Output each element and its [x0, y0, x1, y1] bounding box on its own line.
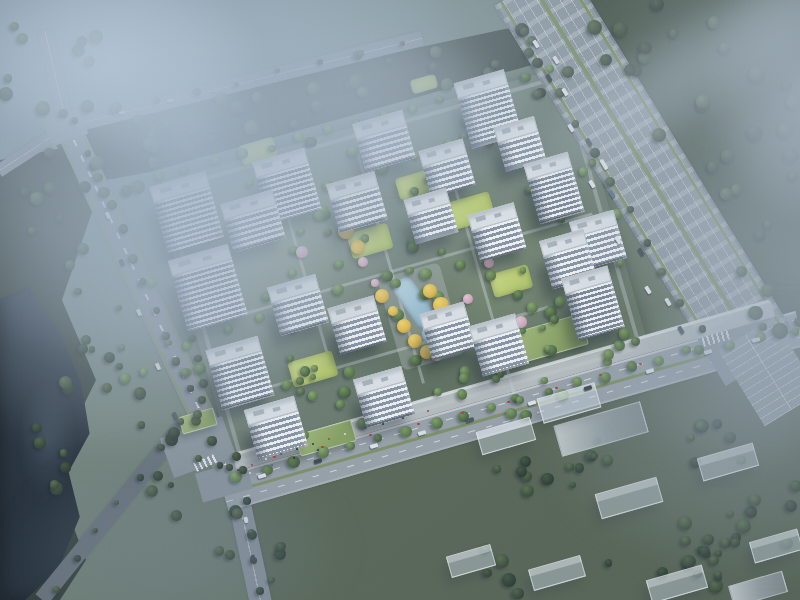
tree	[287, 355, 294, 362]
tree	[256, 313, 265, 322]
tree	[527, 302, 538, 313]
tree	[420, 268, 431, 279]
tree	[747, 126, 762, 141]
tree	[60, 462, 70, 472]
tree	[74, 288, 82, 296]
tree	[788, 171, 799, 182]
tree	[298, 228, 305, 235]
blossom-tree	[463, 294, 474, 305]
tree	[89, 346, 95, 352]
tree	[386, 57, 394, 65]
tree	[516, 396, 524, 404]
tree	[194, 355, 201, 362]
tree	[311, 100, 323, 112]
tree	[708, 16, 721, 29]
shopfront-accent	[507, 401, 510, 403]
shopfront-accent	[369, 434, 372, 436]
tree	[107, 200, 117, 210]
tree	[335, 260, 344, 269]
vehicle	[172, 411, 179, 419]
ghost-building	[646, 564, 708, 600]
tree	[4, 74, 13, 83]
tree	[644, 239, 651, 246]
tree	[163, 120, 175, 132]
aerial-render-canvas	[0, 0, 800, 600]
tree	[346, 442, 355, 451]
tree	[325, 229, 332, 236]
tree	[546, 65, 554, 73]
tree	[688, 434, 694, 440]
tree	[572, 120, 579, 127]
tree	[153, 307, 160, 314]
tree	[570, 482, 577, 489]
tree	[483, 569, 492, 578]
tree	[541, 377, 548, 384]
tree	[89, 30, 103, 44]
tree	[268, 145, 275, 152]
tree	[333, 284, 344, 295]
tree	[566, 463, 574, 471]
apartment-tower	[523, 152, 584, 224]
pedestrian	[362, 428, 364, 430]
tree	[494, 465, 501, 472]
tree	[74, 555, 81, 562]
tree	[430, 46, 441, 57]
tree	[792, 328, 799, 335]
tree	[294, 132, 304, 142]
tree	[77, 243, 89, 255]
tree	[736, 266, 747, 277]
tree	[93, 173, 103, 183]
tree	[785, 500, 797, 512]
tree	[153, 471, 163, 481]
tree	[311, 365, 318, 372]
tree	[778, 123, 793, 138]
tree	[506, 408, 517, 419]
tree	[699, 325, 707, 333]
tree	[339, 386, 351, 398]
tree	[696, 421, 705, 430]
tree	[533, 90, 541, 98]
tree	[681, 536, 691, 546]
apartment-tower	[267, 274, 329, 336]
tree	[400, 41, 405, 46]
tree	[308, 391, 318, 401]
tree	[324, 124, 334, 134]
tree	[676, 299, 684, 307]
tree	[679, 516, 692, 529]
tree	[541, 473, 553, 485]
tree	[459, 373, 469, 383]
tree	[215, 92, 228, 105]
tree	[457, 389, 468, 400]
tree	[290, 120, 298, 128]
tree	[700, 546, 711, 557]
tree	[289, 269, 297, 277]
tree	[487, 403, 495, 411]
tree	[721, 149, 735, 163]
tree	[348, 146, 358, 156]
tree	[719, 42, 731, 54]
tree	[139, 278, 146, 285]
tree	[725, 432, 736, 443]
tree	[737, 519, 751, 533]
shopfront-accent	[639, 363, 642, 365]
tree	[208, 134, 219, 145]
tree	[276, 542, 285, 551]
tree	[121, 185, 133, 197]
tree	[30, 192, 44, 206]
tree	[772, 323, 787, 338]
lake-reflection	[18, 380, 78, 500]
tree	[252, 92, 262, 102]
gold-tree	[375, 289, 390, 304]
tree	[682, 346, 690, 354]
tree	[721, 538, 731, 548]
tree	[748, 306, 762, 320]
tree	[631, 337, 639, 345]
tree	[168, 427, 180, 439]
tree	[243, 497, 251, 505]
gold-tree	[423, 284, 436, 297]
tree	[193, 88, 201, 96]
vehicle	[588, 180, 596, 189]
tree	[56, 214, 65, 223]
tree	[614, 340, 625, 351]
vehicle	[155, 362, 162, 370]
tree	[116, 305, 123, 312]
lawn	[488, 264, 533, 298]
tree	[731, 538, 740, 547]
tree	[138, 421, 145, 428]
tree	[703, 534, 714, 545]
blossom-tree	[371, 279, 380, 288]
tree	[575, 463, 585, 473]
apartment-tower	[168, 244, 248, 332]
tree	[713, 419, 722, 428]
tree	[168, 482, 174, 488]
tree	[180, 166, 189, 175]
tree	[53, 586, 60, 593]
tree	[579, 167, 588, 176]
apartment-tower	[326, 171, 388, 233]
tree	[36, 101, 50, 115]
tree	[59, 376, 72, 389]
tree	[627, 361, 637, 371]
tree	[155, 171, 165, 181]
pedestrian	[427, 410, 429, 412]
tree	[247, 180, 254, 187]
tree	[234, 82, 239, 87]
tree	[725, 341, 734, 350]
ghost-building	[595, 477, 664, 520]
tree	[318, 446, 329, 457]
tree	[514, 290, 524, 300]
tree	[238, 106, 247, 115]
tree	[297, 388, 305, 396]
tree	[492, 375, 500, 383]
lawn	[410, 74, 439, 95]
tree	[400, 426, 412, 438]
shopfront-accent	[321, 446, 324, 448]
tree	[84, 56, 95, 67]
tree	[34, 437, 46, 449]
shopfront-accent	[461, 412, 464, 414]
tree	[120, 373, 131, 384]
tree	[441, 78, 453, 90]
tree	[77, 36, 87, 46]
tree	[728, 511, 735, 518]
hip-roof-building	[728, 571, 788, 600]
tree	[0, 87, 13, 100]
tree	[437, 96, 445, 104]
tree	[133, 114, 144, 125]
gold-tree	[397, 319, 412, 334]
tree	[282, 380, 292, 390]
tree	[429, 62, 439, 72]
tree	[172, 357, 181, 366]
tree	[613, 22, 628, 37]
tree	[410, 355, 422, 367]
tree	[790, 480, 800, 492]
tree	[709, 556, 718, 565]
tree	[406, 267, 414, 275]
tree	[148, 157, 159, 168]
tree	[605, 559, 613, 567]
tree	[639, 42, 652, 55]
tree	[520, 267, 526, 273]
tree	[268, 577, 274, 583]
tree	[225, 325, 233, 333]
tree	[59, 109, 68, 118]
tree	[171, 510, 182, 521]
tree	[187, 385, 194, 392]
pedestrian	[280, 453, 282, 455]
shopfront-accent	[273, 456, 276, 458]
tree	[131, 180, 145, 194]
tree	[391, 279, 400, 288]
tree	[98, 187, 109, 198]
pedestrian	[296, 448, 298, 450]
tree	[409, 105, 417, 113]
vehicle	[677, 326, 685, 335]
tree	[336, 400, 345, 409]
tree	[85, 150, 92, 157]
ghost-building	[528, 555, 586, 591]
tree	[619, 328, 631, 340]
tree	[256, 587, 264, 595]
tree	[651, 0, 664, 11]
tree	[491, 60, 500, 69]
tree	[116, 363, 123, 370]
tree	[182, 141, 191, 150]
tree	[71, 117, 78, 124]
tree	[91, 156, 105, 170]
tree	[486, 270, 496, 280]
tree	[749, 494, 761, 506]
tree	[439, 248, 446, 255]
pedestrian	[382, 423, 384, 425]
tree	[81, 100, 93, 112]
tree	[516, 466, 527, 477]
tree	[151, 145, 159, 153]
tree	[78, 344, 89, 355]
pedestrian	[402, 417, 404, 419]
apartment-tower	[327, 295, 386, 354]
ghost-building	[749, 529, 800, 564]
tree	[165, 340, 172, 347]
tree	[211, 155, 221, 165]
tree	[226, 464, 233, 471]
apartment-tower	[352, 110, 416, 172]
tree	[65, 260, 75, 270]
tree	[358, 50, 364, 56]
gold-tree	[408, 334, 422, 348]
tree	[555, 296, 566, 307]
tree	[195, 455, 202, 462]
pedestrian	[265, 458, 267, 460]
apartment-tower	[149, 171, 224, 254]
tree	[28, 227, 36, 235]
ghost-building	[697, 442, 759, 481]
tree	[786, 95, 800, 110]
tree	[244, 120, 259, 135]
tree	[617, 260, 624, 267]
tree	[306, 137, 317, 148]
tree	[603, 349, 614, 360]
tree	[137, 474, 144, 481]
tree	[755, 230, 766, 241]
vehicle	[644, 286, 652, 295]
tree	[357, 87, 367, 97]
tree	[44, 182, 56, 194]
tree	[696, 95, 710, 109]
tree	[562, 66, 574, 78]
tree	[207, 436, 216, 445]
tree	[512, 588, 523, 599]
tree	[104, 352, 115, 363]
tree	[134, 387, 146, 399]
tree	[782, 81, 791, 90]
tree	[545, 345, 552, 352]
tree	[624, 64, 636, 76]
tree	[194, 363, 205, 374]
tree	[520, 456, 531, 467]
tree	[146, 485, 158, 497]
tree	[590, 148, 600, 158]
shopfront-accent	[555, 387, 558, 389]
tree	[349, 74, 363, 88]
tree	[495, 554, 509, 568]
tree	[434, 388, 441, 395]
tree	[591, 453, 597, 459]
tree	[215, 546, 225, 556]
tree	[232, 452, 241, 461]
blossom-tree	[358, 257, 369, 268]
tree	[794, 317, 800, 328]
tree	[344, 366, 355, 377]
shopfront-accent	[417, 423, 420, 425]
shopfront-accent	[599, 374, 602, 376]
tree	[522, 485, 534, 497]
tree	[238, 148, 248, 158]
tree	[32, 423, 42, 433]
tree	[720, 188, 732, 200]
tree	[225, 550, 234, 559]
tree	[431, 417, 443, 429]
tree	[248, 529, 253, 534]
fog-patch	[700, 0, 800, 220]
tree	[764, 220, 772, 228]
tree	[140, 368, 148, 376]
tree	[153, 97, 160, 104]
tree	[119, 344, 125, 350]
vehicle	[664, 298, 672, 307]
tree	[669, 29, 678, 38]
tree	[20, 187, 30, 197]
tree	[44, 148, 55, 159]
tree	[652, 128, 666, 142]
tree	[784, 149, 798, 163]
tree	[178, 418, 184, 424]
tree	[532, 58, 542, 68]
tree	[189, 335, 196, 342]
tree	[10, 22, 19, 31]
tree	[60, 449, 68, 457]
tree	[17, 33, 28, 44]
tree	[102, 383, 112, 393]
tree	[314, 210, 325, 221]
tree	[217, 462, 224, 469]
apartment-tower	[206, 336, 275, 410]
tree	[520, 27, 529, 36]
tree	[183, 341, 192, 350]
tree	[50, 480, 59, 489]
tree	[710, 579, 723, 592]
tree	[707, 161, 719, 173]
tree	[307, 82, 320, 95]
tree	[456, 260, 466, 270]
tree	[589, 159, 596, 166]
tree	[521, 73, 531, 83]
tree	[502, 573, 515, 586]
blossom-tree	[296, 246, 308, 258]
tree	[761, 284, 774, 297]
tree	[745, 506, 757, 518]
tree	[603, 455, 614, 466]
tree	[749, 67, 764, 82]
tree	[199, 379, 208, 388]
